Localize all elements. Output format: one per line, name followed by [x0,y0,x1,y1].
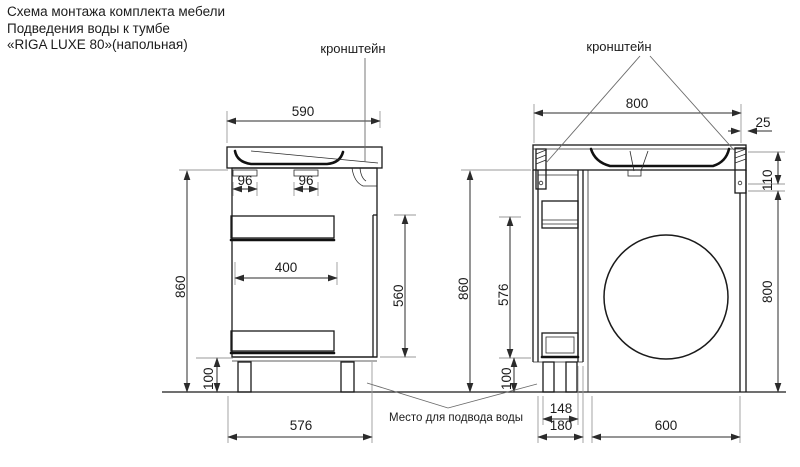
cabinet-bottom-box-inner [546,337,574,353]
dim-text-110: 110 [760,169,775,191]
cabinet-side-body [232,168,377,357]
mounting-scheme-page: Схема монтажа комплекта мебели Подведени… [0,0,800,467]
dim-text-860-right: 860 [456,277,471,300]
dim-text-576-left: 576 [290,418,313,433]
dim-body-860-right: 860 [456,170,531,392]
dim-text-590: 590 [292,104,315,119]
dim-text-560: 560 [391,284,406,307]
dim-base-576-left: 576 [228,362,372,443]
leg-rear [341,362,354,392]
assembly-drawing: 590 96 96 400 560 [0,0,800,467]
dim-text-860-left: 860 [173,275,188,298]
dim-text-96b: 96 [298,173,313,188]
dim-body-860-left: 860 [173,170,228,392]
leg-front [238,362,251,392]
dim-text-100-right: 100 [499,367,514,390]
dim-space-600: 600 [592,396,740,443]
dim-text-180: 180 [550,418,573,433]
bracket-label-right-view: кронштейн [586,39,651,54]
cabinet-leg-right [566,362,577,392]
dim-text-800-side: 800 [760,280,775,303]
dim-text-25: 25 [755,115,770,130]
dim-rail-96-mid: 96 [294,173,318,196]
dim-side-800: 800 [748,191,785,392]
washing-machine-door-circle [604,235,728,359]
bracket-side-curve [360,168,366,181]
dim-bracket-110: 110 [748,152,785,191]
dim-drawer-400: 400 [235,260,337,285]
dim-text-400: 400 [275,260,298,275]
dim-leg-100-right: 100 [499,358,514,392]
water-supply-label: Место для подвода воды [389,412,523,424]
dim-top-800: 800 [534,96,741,143]
callout-bracket-left-view: кронштейн [320,41,385,162]
drawer-lower [231,331,334,351]
dim-text-148: 148 [550,401,573,416]
dim-inner-560: 560 [380,215,416,357]
drain-tab [628,170,641,176]
front-view-cabinet [533,145,746,392]
dim-text-600: 600 [655,418,678,433]
dim-text-96a: 96 [237,173,252,188]
dim-text-100-left: 100 [201,367,216,390]
bracket-label-left-view: кронштейн [320,41,385,56]
dim-text-576-right: 576 [496,283,511,306]
cabinet-leg-left [543,362,554,392]
dim-text-800-top: 800 [626,96,649,111]
bracket-side-shape [352,168,377,186]
drawer-upper [231,216,334,238]
dim-cabinet-148: 148 [543,366,578,425]
dim-inner-576-right: 576 [496,217,531,358]
dim-leg-100-left: 100 [196,358,233,392]
dim-sink-depth-590: 590 [227,104,380,143]
dim-rail-96-front: 96 [233,173,257,196]
dim-offset-25: 25 [728,115,772,131]
